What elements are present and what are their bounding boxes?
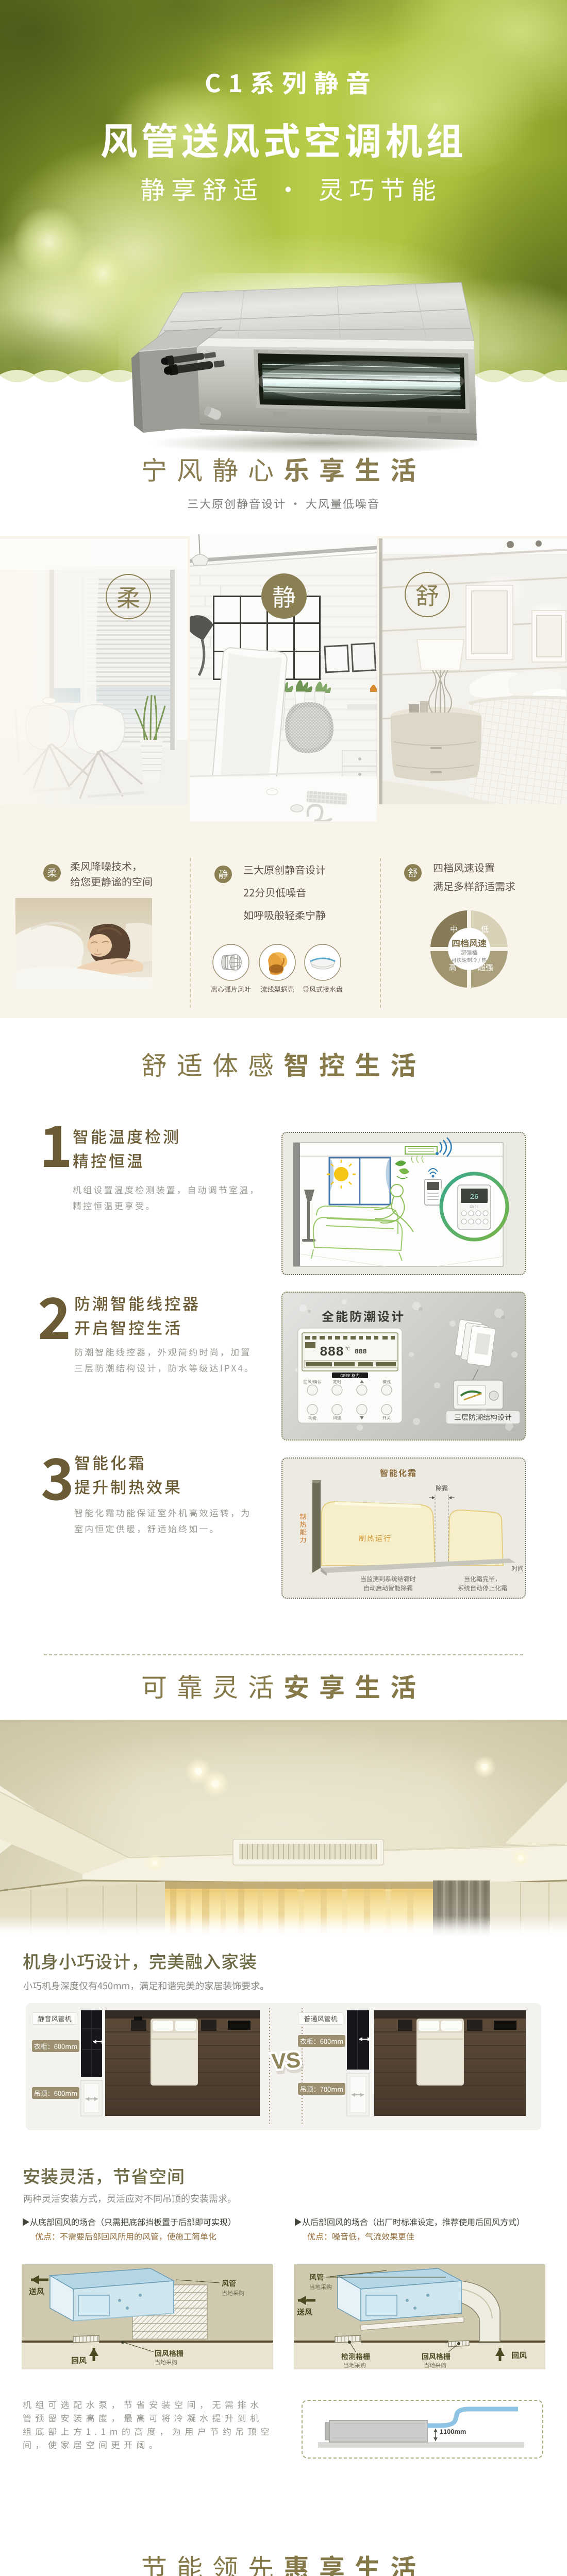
- svg-text:制热能力: 制热能力: [298, 1513, 308, 1544]
- svg-text:送风: 送风: [29, 2286, 44, 2297]
- svg-text:风管: 风管: [309, 2272, 324, 2282]
- svg-text:当地采购: 当地采购: [309, 2283, 332, 2291]
- svg-text:当地采购: 当地采购: [155, 2358, 177, 2366]
- svg-text:除霜: 除霜: [436, 1484, 448, 1493]
- svg-text:1100mm: 1100mm: [440, 2427, 466, 2436]
- svg-text:GREE 格力: GREE 格力: [340, 1373, 360, 1379]
- svg-text:模式: 模式: [382, 1379, 391, 1385]
- svg-text:回风: 回风: [511, 2350, 527, 2361]
- svg-text:℃: ℃: [345, 1345, 350, 1352]
- svg-text:当地采购: 当地采购: [222, 2289, 244, 2297]
- svg-text:四档风速: 四档风速: [452, 936, 487, 949]
- svg-text:GREE: GREE: [470, 1205, 479, 1210]
- svg-text:开关: 开关: [382, 1415, 391, 1421]
- svg-text:回风格栅: 回风格栅: [422, 2351, 451, 2362]
- svg-text:可快速制冷 / 热: 可快速制冷 / 热: [452, 956, 487, 963]
- svg-text:高: 高: [449, 962, 457, 973]
- svg-text:低: 低: [481, 924, 489, 935]
- svg-text:当监测到系统结霜时: 当监测到系统结霜时: [360, 1574, 416, 1583]
- svg-text:全能防潮设计: 全能防潮设计: [322, 1307, 405, 1325]
- svg-text:▼: ▼: [360, 1415, 364, 1421]
- svg-text:回风/确认: 回风/确认: [303, 1379, 321, 1385]
- svg-text:当地采购: 当地采购: [424, 2361, 446, 2369]
- svg-text:风速: 风速: [333, 1415, 341, 1421]
- svg-text:回风格栅: 回风格栅: [155, 2348, 184, 2359]
- svg-text:自动启动智能除霜: 自动启动智能除霜: [363, 1584, 413, 1592]
- svg-text:定时: 定时: [333, 1379, 341, 1385]
- svg-text:VS: VS: [271, 2047, 301, 2074]
- svg-text:当地采购: 当地采购: [343, 2361, 366, 2369]
- svg-text:中: 中: [450, 924, 458, 935]
- svg-text:三层防潮结构设计: 三层防潮结构设计: [454, 1412, 512, 1422]
- svg-text:时间: 时间: [511, 1564, 524, 1573]
- svg-text:制热运行: 制热运行: [359, 1533, 392, 1544]
- svg-text:当化霜完毕，: 当化霜完毕，: [464, 1574, 501, 1583]
- svg-text:26: 26: [470, 1193, 479, 1201]
- svg-text:超强: 超强: [478, 962, 493, 973]
- svg-text:风管: 风管: [222, 2278, 236, 2289]
- svg-text:888: 888: [320, 1344, 344, 1360]
- svg-text:▲: ▲: [360, 1379, 364, 1385]
- svg-text:888: 888: [355, 1348, 367, 1355]
- svg-text:送风: 送风: [297, 2307, 312, 2317]
- svg-text:智能化霜: 智能化霜: [380, 1466, 417, 1479]
- svg-text:检测格栅: 检测格栅: [341, 2351, 370, 2362]
- svg-text:回风: 回风: [71, 2355, 87, 2366]
- svg-text:功能: 功能: [308, 1415, 316, 1421]
- svg-text:系统自动停止化霜: 系统自动停止化霜: [458, 1584, 507, 1592]
